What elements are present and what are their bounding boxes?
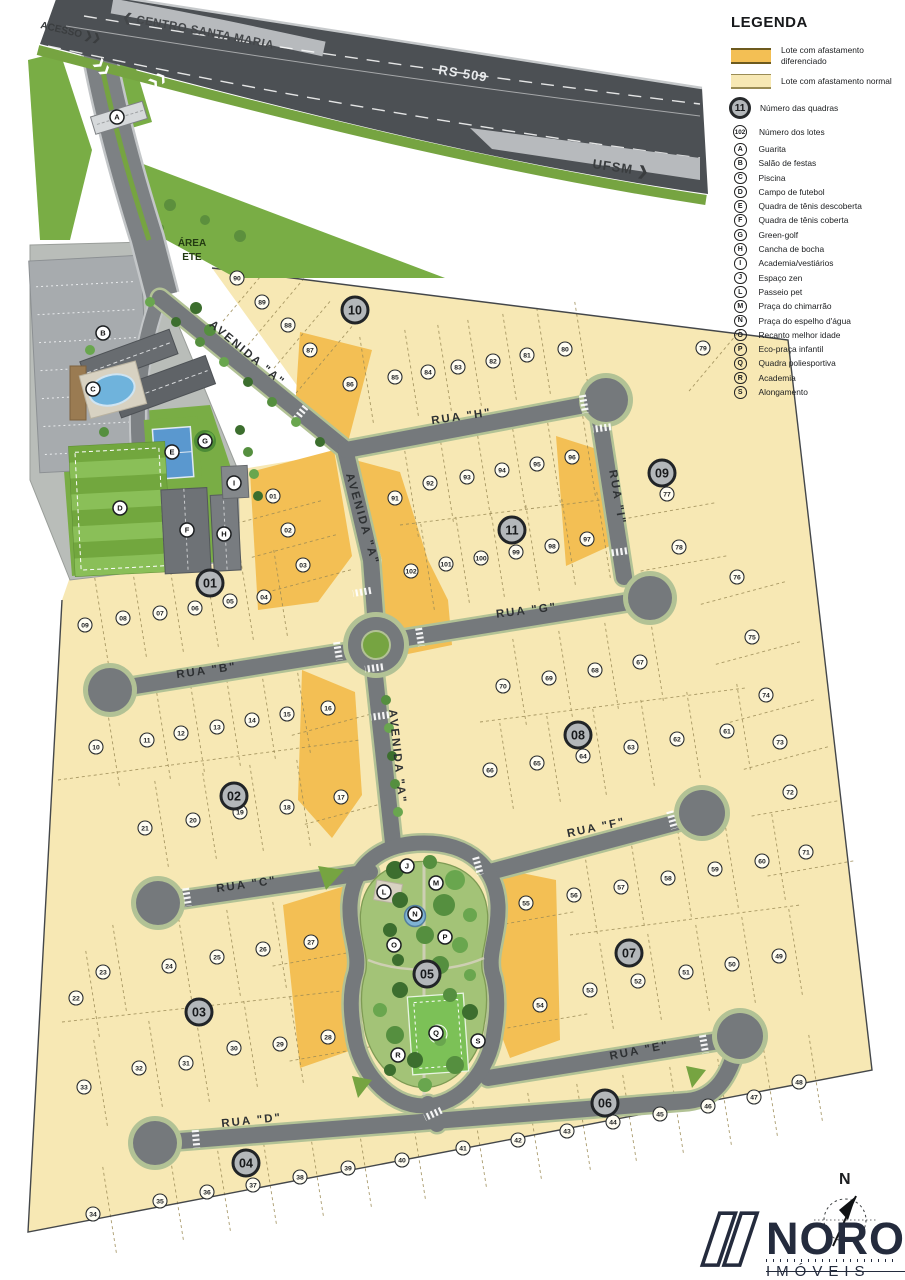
svg-text:L: L [382,888,387,897]
svg-text:M: M [433,879,439,888]
lot-marker: 76 [730,570,744,584]
legend-item: EQuadra de tênis descoberta [731,200,903,213]
svg-text:66: 66 [486,767,494,774]
svg-text:36: 36 [203,1189,211,1196]
legend-symbol: G [734,229,747,242]
legend-item: 11Número das quadras [731,97,903,119]
tree [190,302,202,314]
tree [433,894,455,916]
lot-marker: 55 [519,896,533,910]
lot-marker: 36 [200,1185,214,1199]
svg-text:E: E [169,448,174,457]
lot-marker: 83 [451,360,465,374]
tree [418,1078,432,1092]
svg-text:08: 08 [119,615,127,622]
svg-text:08: 08 [571,728,585,742]
lot-marker: 50 [725,957,739,971]
tree [445,870,465,890]
legend-swatch [731,48,771,64]
svg-text:15: 15 [283,711,291,718]
svg-text:G: G [202,437,208,446]
tree [243,377,253,387]
svg-text:03: 03 [299,562,307,569]
svg-text:64: 64 [579,753,587,760]
block-marker: 09 [649,460,675,486]
lot-marker: 27 [304,935,318,949]
svg-text:19: 19 [236,809,244,816]
legend-item-label: Passeio pet [759,287,803,298]
amenity-marker-R: R [391,1048,405,1062]
svg-text:54: 54 [536,1002,544,1009]
tree [462,1004,478,1020]
amenity-marker-I: I [227,476,241,490]
svg-text:01: 01 [203,576,217,590]
lot-marker: 03 [296,558,310,572]
svg-text:84: 84 [424,369,432,376]
lot-marker: 35 [153,1194,167,1208]
tree [235,425,245,435]
amenity-marker-O: O [387,938,401,952]
legend-swatches: Lote com afastamento diferenciadoLote co… [731,45,903,89]
legend-swatch-row: Lote com afastamento normal [731,74,903,89]
amenity-marker-J: J [400,859,414,873]
legend-item-label: Cancha de bocha [759,244,825,255]
amenity-marker-A: A [110,110,124,124]
lot-marker: 25 [210,950,224,964]
tree [464,969,476,981]
svg-text:J: J [405,862,409,871]
svg-text:F: F [185,526,190,535]
tree [452,937,468,953]
svg-text:79: 79 [699,345,707,352]
svg-text:99: 99 [512,549,520,556]
legend-item: CPiscina [731,172,903,185]
svg-text:37: 37 [249,1182,257,1189]
amenity-marker-M: M [429,876,443,890]
brand-text: NORO IMÓVEIS [766,1221,905,1280]
svg-text:06: 06 [191,605,199,612]
tree [381,695,391,705]
svg-text:98: 98 [548,543,556,550]
lot-marker: 61 [720,724,734,738]
lot-marker: 87 [303,343,317,357]
svg-text:30: 30 [230,1045,238,1052]
svg-text:92: 92 [426,480,434,487]
svg-text:10: 10 [348,303,362,317]
legend-symbol: F [734,214,747,227]
lot-marker: 68 [588,663,602,677]
svg-text:45: 45 [656,1111,664,1118]
svg-text:31: 31 [182,1060,190,1067]
svg-text:27: 27 [307,939,315,946]
legend-symbol: H [734,243,747,256]
lot-marker: 14 [245,713,259,727]
svg-text:67: 67 [636,659,644,666]
legend-symbol: 102 [733,125,747,139]
lot-marker: 29 [273,1037,287,1051]
svg-text:91: 91 [391,495,399,502]
legend-item-label: Campo de futebol [759,187,825,198]
svg-text:68: 68 [591,667,599,674]
lot-marker: 39 [341,1161,355,1175]
svg-text:17: 17 [337,794,345,801]
lot-marker: 07 [153,606,167,620]
lot-marker: 98 [545,539,559,553]
legend-item: NPraça do espelho d'água [731,315,903,328]
legend-item-label: Número das quadras [760,103,838,114]
svg-text:88: 88 [284,322,292,329]
lot-marker: 82 [486,354,500,368]
legend-item-label: Quadra de tênis descoberta [759,201,862,212]
site-plan-page: ÁREA ETE [0,0,905,1280]
svg-text:52: 52 [634,978,642,985]
svg-text:25: 25 [213,954,221,961]
svg-text:18: 18 [283,804,291,811]
amenity-marker-E: E [165,445,179,459]
brand-subtitle: IMÓVEIS [766,1263,905,1280]
tree [219,357,229,367]
svg-text:102: 102 [405,568,417,575]
block-marker: 03 [186,999,212,1025]
svg-text:60: 60 [758,858,766,865]
lot-marker: 63 [624,740,638,754]
legend-symbol: M [734,300,747,313]
legend-item-label: Eco-praça infantil [759,344,824,355]
svg-text:59: 59 [711,866,719,873]
legend-item-label: Quadra de tênis coberta [759,215,849,226]
svg-text:N: N [412,910,417,919]
svg-text:49: 49 [775,953,783,960]
lot-marker: 06 [188,601,202,615]
legend-symbol: S [734,386,747,399]
block-marker: 07 [616,940,642,966]
svg-text:61: 61 [723,728,731,735]
legend-swatch-label: Lote com afastamento diferenciado [781,45,903,66]
lot-marker: 72 [783,785,797,799]
tree [195,337,205,347]
legend-item: LPasseio pet [731,286,903,299]
legend-item-label: Salão de festas [759,158,817,169]
legend-item-label: Recanto melhor idade [759,330,841,341]
tree [407,1052,423,1068]
lot-marker: 99 [509,545,523,559]
lot-marker: 22 [69,991,83,1005]
amenity-marker-D: D [113,501,127,515]
svg-text:06: 06 [598,1096,612,1110]
svg-text:82: 82 [489,358,497,365]
legend-symbol: C [734,172,747,185]
svg-text:90: 90 [233,275,241,282]
svg-text:21: 21 [141,825,149,832]
svg-text:58: 58 [664,875,672,882]
tree [392,982,408,998]
lot-marker: 70 [496,679,510,693]
svg-text:43: 43 [563,1128,571,1135]
svg-text:35: 35 [156,1198,164,1205]
legend-symbol: L [734,286,747,299]
svg-text:05: 05 [226,598,234,605]
lot-marker: 43 [560,1124,574,1138]
svg-text:09: 09 [655,466,669,480]
legend-symbol: 11 [729,97,751,119]
svg-text:24: 24 [165,963,173,970]
tree [171,317,181,327]
legend-symbol: N [734,315,747,328]
svg-text:38: 38 [296,1174,304,1181]
svg-text:85: 85 [391,374,399,381]
svg-text:04: 04 [260,594,268,601]
legend-item: QQuadra poliesportiva [731,357,903,370]
lot-marker: 15 [280,707,294,721]
legend-item: 102Número dos lotes [731,125,903,139]
lot-marker: 77 [660,487,674,501]
amenity-marker-P: P [438,930,452,944]
svg-text:10: 10 [92,744,100,751]
lot-marker: 101 [439,557,453,571]
svg-text:28: 28 [324,1034,332,1041]
svg-text:39: 39 [344,1165,352,1172]
lot-marker: 41 [456,1141,470,1155]
lot-marker: 18 [280,800,294,814]
lot-marker: 04 [257,590,271,604]
legend-item-label: Piscina [759,173,786,184]
legend-item: SAlongamento [731,386,903,399]
svg-text:96: 96 [568,454,576,461]
svg-text:H: H [221,530,226,539]
lot-marker: 91 [388,491,402,505]
svg-text:57: 57 [617,884,625,891]
amenity-marker-C: C [86,382,100,396]
legend-item-label: Academia [759,373,796,384]
svg-text:O: O [391,941,397,950]
brand-mark-icon [698,1194,760,1280]
block-marker: 02 [221,783,247,809]
svg-text:48: 48 [795,1079,803,1086]
lot-marker: 45 [653,1107,667,1121]
lot-marker: 46 [701,1099,715,1113]
lot-marker: 34 [86,1207,100,1221]
lot-marker: 33 [77,1080,91,1094]
lot-marker: 86 [343,377,357,391]
tree [145,297,155,307]
brand-name: NORO [766,1221,905,1257]
block-marker: 11 [499,517,525,543]
svg-text:I: I [233,479,235,488]
lot-marker: 94 [495,463,509,477]
svg-text:86: 86 [346,381,354,388]
svg-text:73: 73 [776,739,784,746]
lot-marker: 71 [799,845,813,859]
tree [446,1056,464,1074]
svg-text:80: 80 [561,346,569,353]
legend-items: 11Número das quadras102Número dos lotesA… [731,97,903,399]
svg-text:R: R [395,1051,401,1060]
svg-text:100: 100 [475,555,487,562]
svg-text:56: 56 [570,892,578,899]
svg-text:44: 44 [609,1119,617,1126]
lot-marker: 16 [321,701,335,715]
svg-text:05: 05 [420,967,434,981]
svg-text:53: 53 [586,987,594,994]
lot-marker: 23 [96,965,110,979]
amenity-marker-H: H [217,527,231,541]
tree [423,855,437,869]
lot-marker: 95 [530,457,544,471]
amenity-marker-B: B [96,326,110,340]
svg-text:C: C [90,385,96,394]
lot-marker: 85 [388,370,402,384]
lot-marker: 69 [542,671,556,685]
lot-marker: 47 [747,1090,761,1104]
legend-swatch-label: Lote com afastamento normal [781,76,892,87]
lot-marker: 11 [140,733,154,747]
lot-marker: 12 [174,726,188,740]
svg-text:11: 11 [505,523,518,537]
tree [291,417,301,427]
svg-text:63: 63 [627,744,635,751]
legend-symbol: I [734,257,747,270]
svg-text:77: 77 [663,491,671,498]
lot-marker: 49 [772,949,786,963]
amenity-marker-L: L [377,885,391,899]
lot-marker: 75 [745,630,759,644]
svg-text:101: 101 [440,561,452,568]
legend-item: RAcademia [731,372,903,385]
tree [392,954,404,966]
svg-text:87: 87 [306,347,314,354]
svg-text:95: 95 [533,461,541,468]
legend-item: FQuadra de tênis coberta [731,214,903,227]
svg-text:65: 65 [533,760,541,767]
lot-marker: 65 [530,756,544,770]
tree [416,926,434,944]
svg-text:07: 07 [622,946,636,960]
svg-text:16: 16 [324,705,332,712]
tree [443,988,457,1002]
lot-marker: 09 [78,618,92,632]
svg-text:01: 01 [269,493,277,500]
legend-symbol: D [734,186,747,199]
svg-text:07: 07 [156,610,164,617]
svg-text:11: 11 [143,737,150,744]
lot-marker: 89 [255,295,269,309]
svg-text:13: 13 [213,724,221,731]
lot-marker: 79 [696,341,710,355]
amenity-marker-Q: Q [429,1026,443,1040]
svg-text:50: 50 [728,961,736,968]
lot-marker: 100 [474,551,488,565]
tree [315,437,325,447]
svg-text:14: 14 [248,717,256,724]
legend-symbol: O [734,329,747,342]
legend-item-label: Espaço zen [759,273,803,284]
lot-marker: 52 [631,974,645,988]
svg-text:41: 41 [459,1145,467,1152]
lot-marker: 73 [773,735,787,749]
legend-item: PEco-praça infantil [731,343,903,356]
lot-marker: 38 [293,1170,307,1184]
legend-symbol: E [734,200,747,213]
svg-text:40: 40 [398,1157,406,1164]
lot-marker: 90 [230,271,244,285]
lot-marker: 88 [281,318,295,332]
block-marker: 05 [414,961,440,987]
tree [99,427,109,437]
lot-marker: 21 [138,821,152,835]
svg-text:A: A [114,113,120,122]
legend-symbol: P [734,343,747,356]
svg-text:55: 55 [522,900,530,907]
legend-swatch-row: Lote com afastamento diferenciado [731,45,903,66]
legend-item-label: Número dos lotes [759,127,825,138]
lot-marker: 48 [792,1075,806,1089]
svg-text:46: 46 [704,1103,712,1110]
block-marker: 01 [197,570,223,596]
legend-item: IAcademia/vestiários [731,257,903,270]
legend-item-label: Alongamento [759,387,808,398]
svg-text:78: 78 [675,544,683,551]
legend-swatch [731,74,771,89]
lot-marker: 20 [186,813,200,827]
lot-marker: 64 [576,749,590,763]
svg-text:32: 32 [135,1065,143,1072]
lot-marker: 81 [520,348,534,362]
svg-text:89: 89 [258,299,266,306]
svg-text:Q: Q [433,1029,439,1038]
svg-text:12: 12 [177,730,185,737]
svg-text:29: 29 [276,1041,284,1048]
block-marker: 06 [592,1090,618,1116]
lot-marker: 24 [162,959,176,973]
legend-title: LEGENDA [731,14,903,31]
lot-marker: 67 [633,655,647,669]
lot-marker: 80 [558,342,572,356]
block-marker: 10 [342,297,368,323]
svg-text:81: 81 [523,352,531,359]
svg-text:62: 62 [673,736,681,743]
tree [383,923,397,937]
ete-label-line2: ETE [182,252,202,263]
svg-text:02: 02 [284,527,292,534]
lot-marker: 102 [404,564,418,578]
lot-marker: 57 [614,880,628,894]
tree [243,447,253,457]
tree [373,1003,387,1017]
svg-text:76: 76 [733,574,741,581]
tree [249,469,259,479]
lot-marker: 59 [708,862,722,876]
amenity-marker-F: F [180,523,194,537]
tree [267,397,277,407]
legend-item: MPraça do chimarrão [731,300,903,313]
roundabout [343,612,409,678]
legend-item: DCampo de futebol [731,186,903,199]
legend-item: HCancha de bocha [731,243,903,256]
lot-marker: 26 [256,942,270,956]
lot-marker: 62 [670,732,684,746]
tree [393,807,403,817]
svg-text:70: 70 [499,683,507,690]
legend-item: JEspaço zen [731,272,903,285]
svg-text:P: P [442,933,447,942]
tree [386,1026,404,1044]
lot-marker: 56 [567,888,581,902]
svg-text:51: 51 [682,969,690,976]
svg-text:71: 71 [802,849,810,856]
svg-text:26: 26 [259,946,267,953]
svg-text:75: 75 [748,634,756,641]
block-marker: 08 [565,722,591,748]
